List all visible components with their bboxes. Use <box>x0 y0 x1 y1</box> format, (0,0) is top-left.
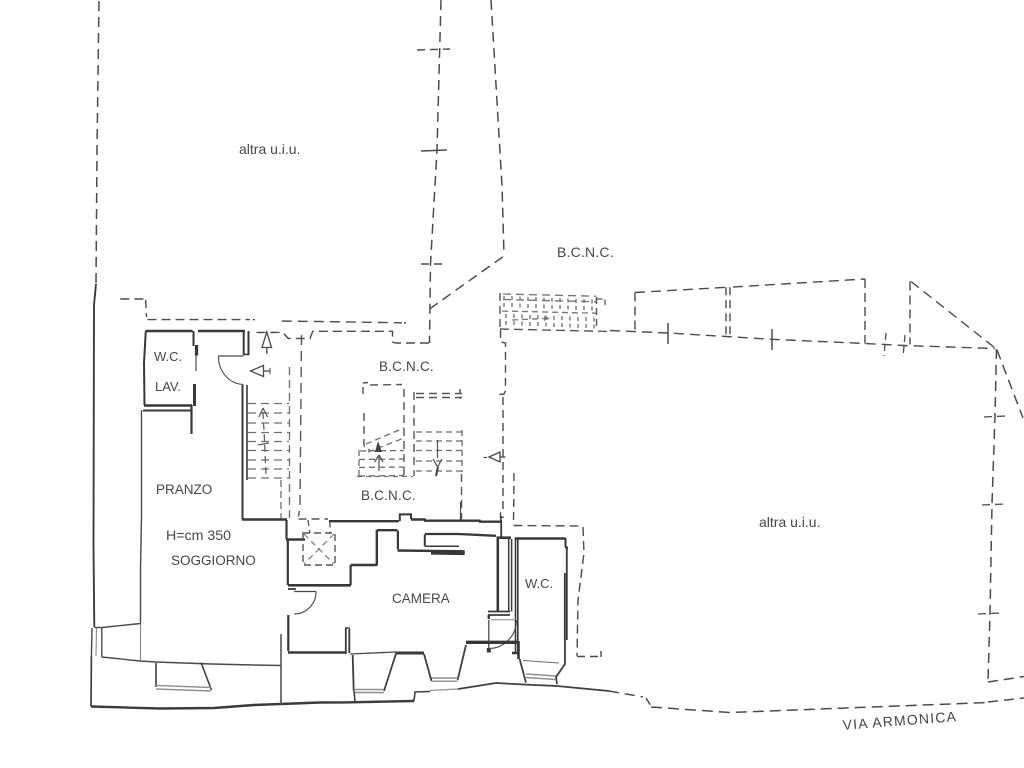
svg-text:B.C.N.C.: B.C.N.C. <box>379 359 434 374</box>
svg-text:B.C.N.C.: B.C.N.C. <box>361 488 416 503</box>
svg-text:B.C.N.C.: B.C.N.C. <box>557 244 614 260</box>
svg-text:altra u.i.u.: altra u.i.u. <box>239 141 300 157</box>
svg-text:H=cm 350: H=cm 350 <box>166 528 231 544</box>
svg-text:LAV.: LAV. <box>155 379 181 394</box>
svg-text:altra u.i.u.: altra u.i.u. <box>759 514 820 530</box>
svg-text:SOGGIORNO: SOGGIORNO <box>171 553 256 568</box>
svg-text:PRANZO: PRANZO <box>156 482 212 497</box>
svg-text:W.C.: W.C. <box>154 349 182 364</box>
svg-text:W.C.: W.C. <box>525 576 553 591</box>
svg-text:CAMERA: CAMERA <box>392 591 450 606</box>
